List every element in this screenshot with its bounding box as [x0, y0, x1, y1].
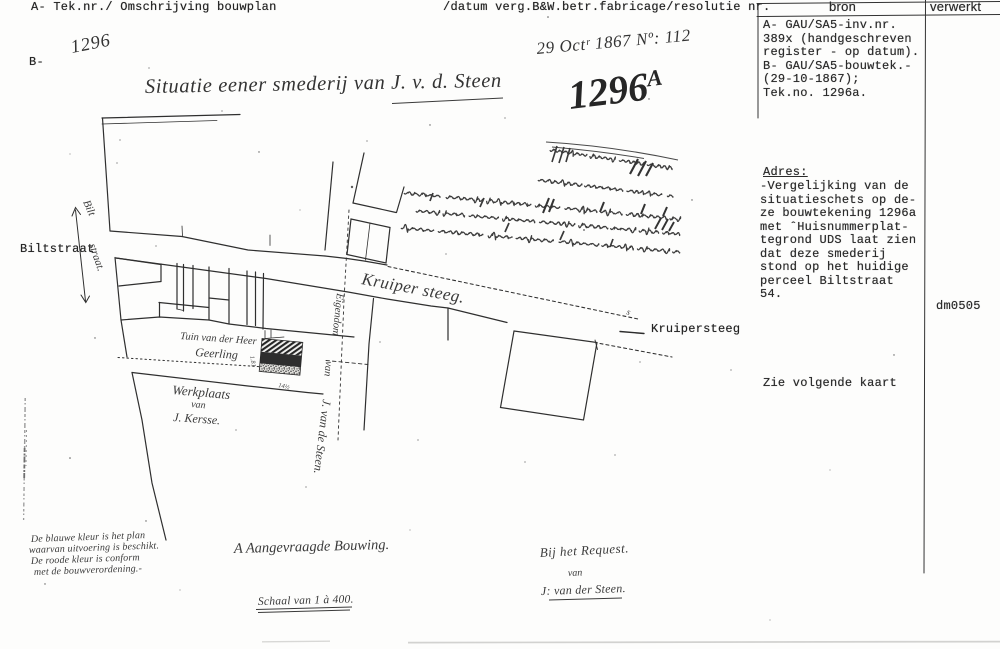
svg-text:Situatie eener smederij van J.: Situatie eener smederij van J. v. d. Ste…	[145, 70, 502, 98]
svg-text:van: van	[568, 568, 583, 579]
svg-text:Schaal van 1 à 400.: Schaal van 1 à 400.	[258, 593, 354, 608]
svg-text:A Aangevraagde Bouwing.: A Aangevraagde Bouwing.	[233, 537, 390, 557]
svg-text:Kruiper steeg.: Kruiper steeg.	[359, 269, 466, 307]
svg-text:s: s	[625, 306, 632, 317]
svg-text:straat.: straat.	[86, 242, 107, 273]
svg-text:Tuin van der Heer: Tuin van der Heer	[180, 331, 258, 347]
svg-text:29 Octʳ 1867 Nº: 112: 29 Octʳ 1867 Nº: 112	[536, 26, 692, 58]
svg-text:van: van	[321, 361, 334, 377]
svg-text:1296A: 1296A	[566, 62, 666, 118]
svg-text:Geerling: Geerling	[195, 345, 239, 362]
svg-text:J: van der Steen.: J: van der Steen.	[541, 581, 626, 598]
svg-text:van: van	[191, 399, 206, 411]
svg-text:1296: 1296	[69, 31, 112, 58]
svg-text:J. van de Steen.: J. van de Steen.	[311, 399, 334, 475]
svg-text:J. Kersse.: J. Kersse.	[173, 410, 221, 427]
svg-text:Bij het Request.: Bij het Request.	[539, 540, 629, 560]
svg-text:Bilt: Bilt	[80, 198, 98, 218]
